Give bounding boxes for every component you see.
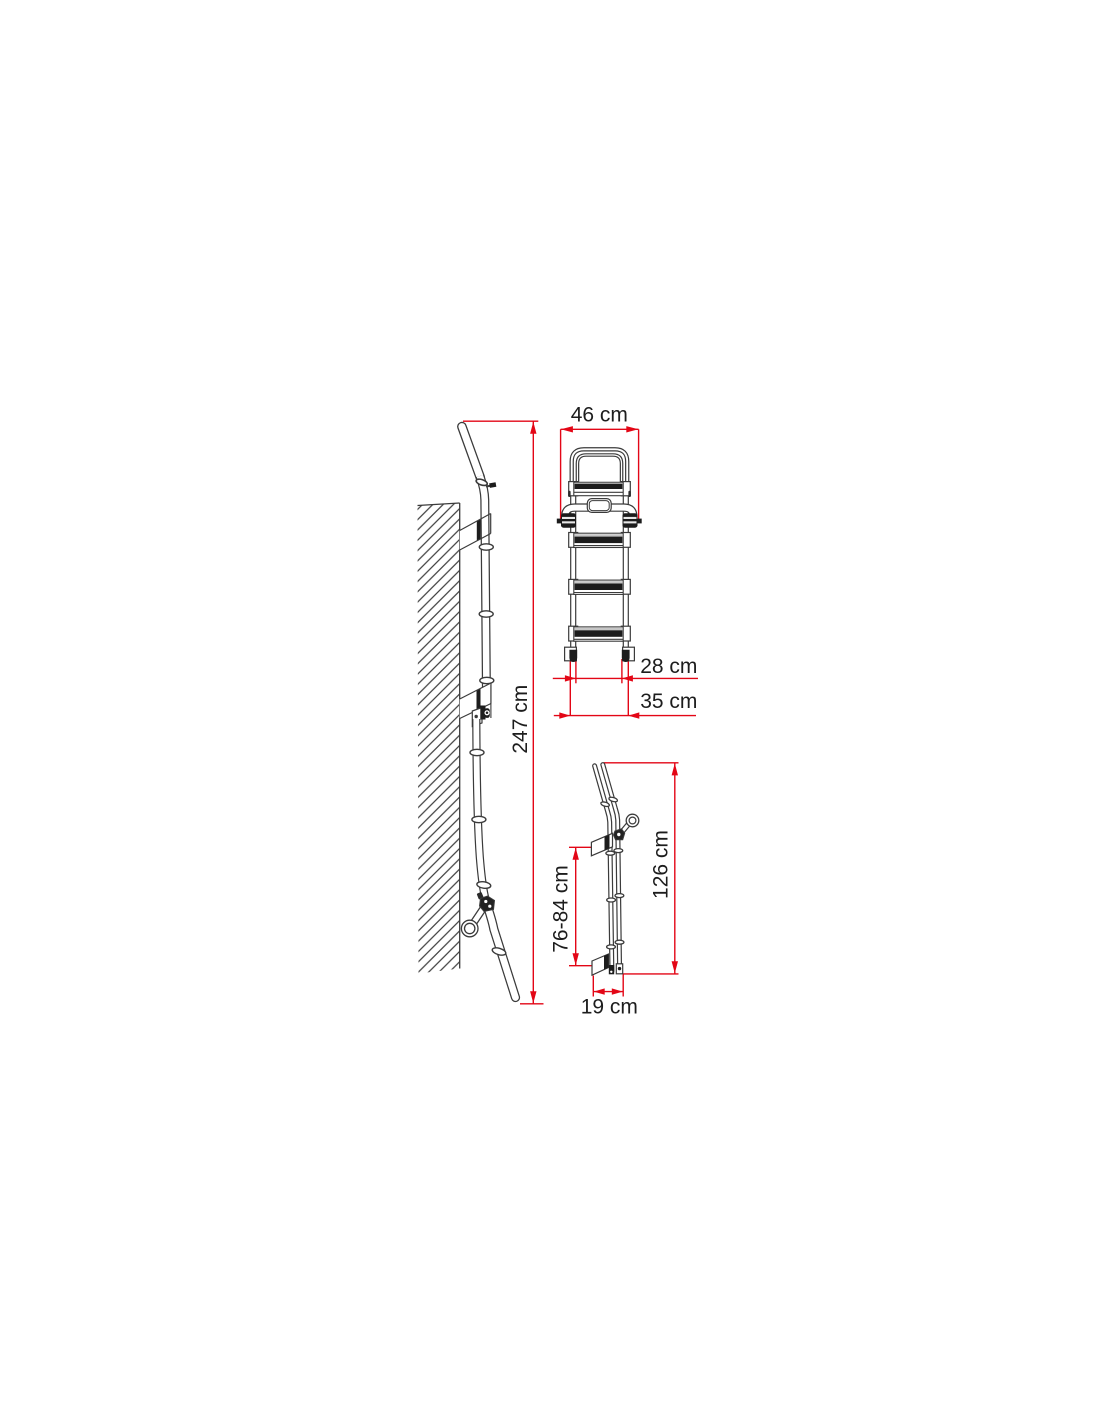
- svg-text:35 cm: 35 cm: [640, 690, 697, 713]
- svg-text:126 cm: 126 cm: [650, 830, 673, 899]
- svg-text:28 cm: 28 cm: [640, 655, 697, 678]
- svg-text:247 cm: 247 cm: [509, 685, 532, 754]
- svg-text:46 cm: 46 cm: [571, 403, 628, 426]
- svg-text:76-84 cm: 76-84 cm: [550, 865, 573, 953]
- svg-text:19 cm: 19 cm: [581, 996, 638, 1019]
